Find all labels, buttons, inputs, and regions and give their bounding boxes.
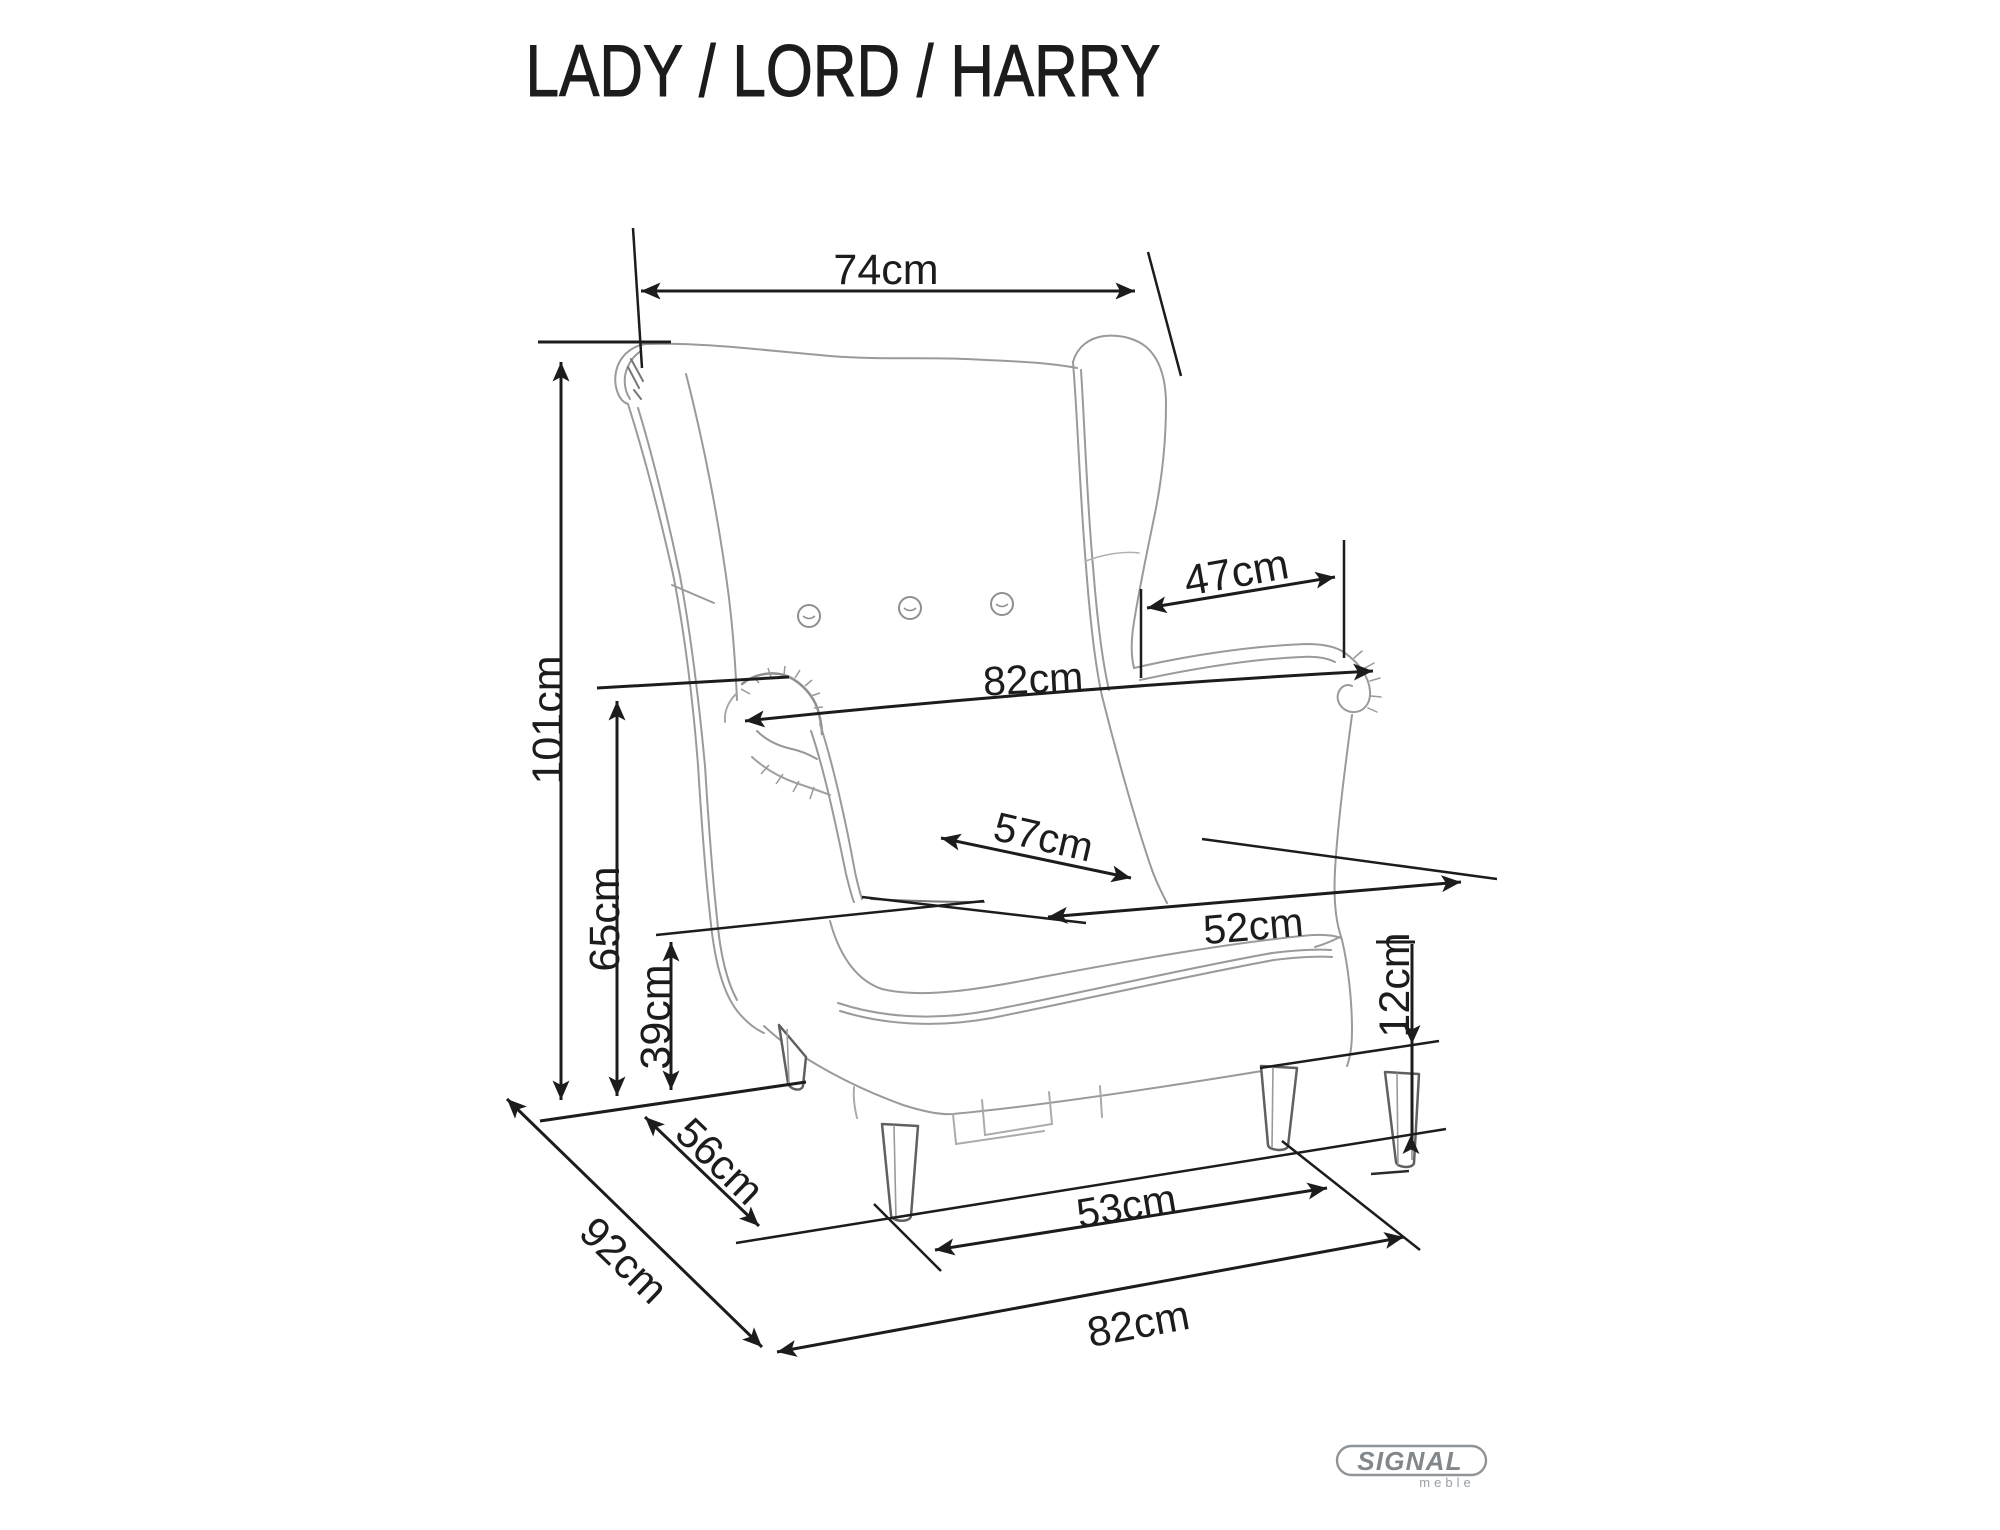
svg-text:52cm: 52cm — [1201, 899, 1305, 954]
svg-text:LADY / LORD / HARRY: LADY / LORD / HARRY — [526, 31, 1161, 112]
svg-text:74cm: 74cm — [833, 246, 938, 294]
svg-text:SIGNAL: SIGNAL — [1357, 1446, 1462, 1476]
svg-text:47cm: 47cm — [1180, 540, 1292, 606]
svg-text:53cm: 53cm — [1073, 1175, 1179, 1237]
svg-text:56cm: 56cm — [667, 1109, 774, 1214]
svg-text:65cm: 65cm — [581, 866, 629, 971]
svg-text:39cm: 39cm — [632, 964, 680, 1069]
svg-text:101cm: 101cm — [524, 655, 572, 784]
svg-text:82cm: 82cm — [982, 653, 1085, 704]
svg-text:meble: meble — [1419, 1475, 1474, 1490]
svg-text:12cm: 12cm — [1371, 932, 1419, 1037]
svg-text:92cm: 92cm — [571, 1208, 678, 1313]
svg-text:57cm: 57cm — [990, 803, 1098, 870]
svg-text:82cm: 82cm — [1083, 1291, 1193, 1356]
